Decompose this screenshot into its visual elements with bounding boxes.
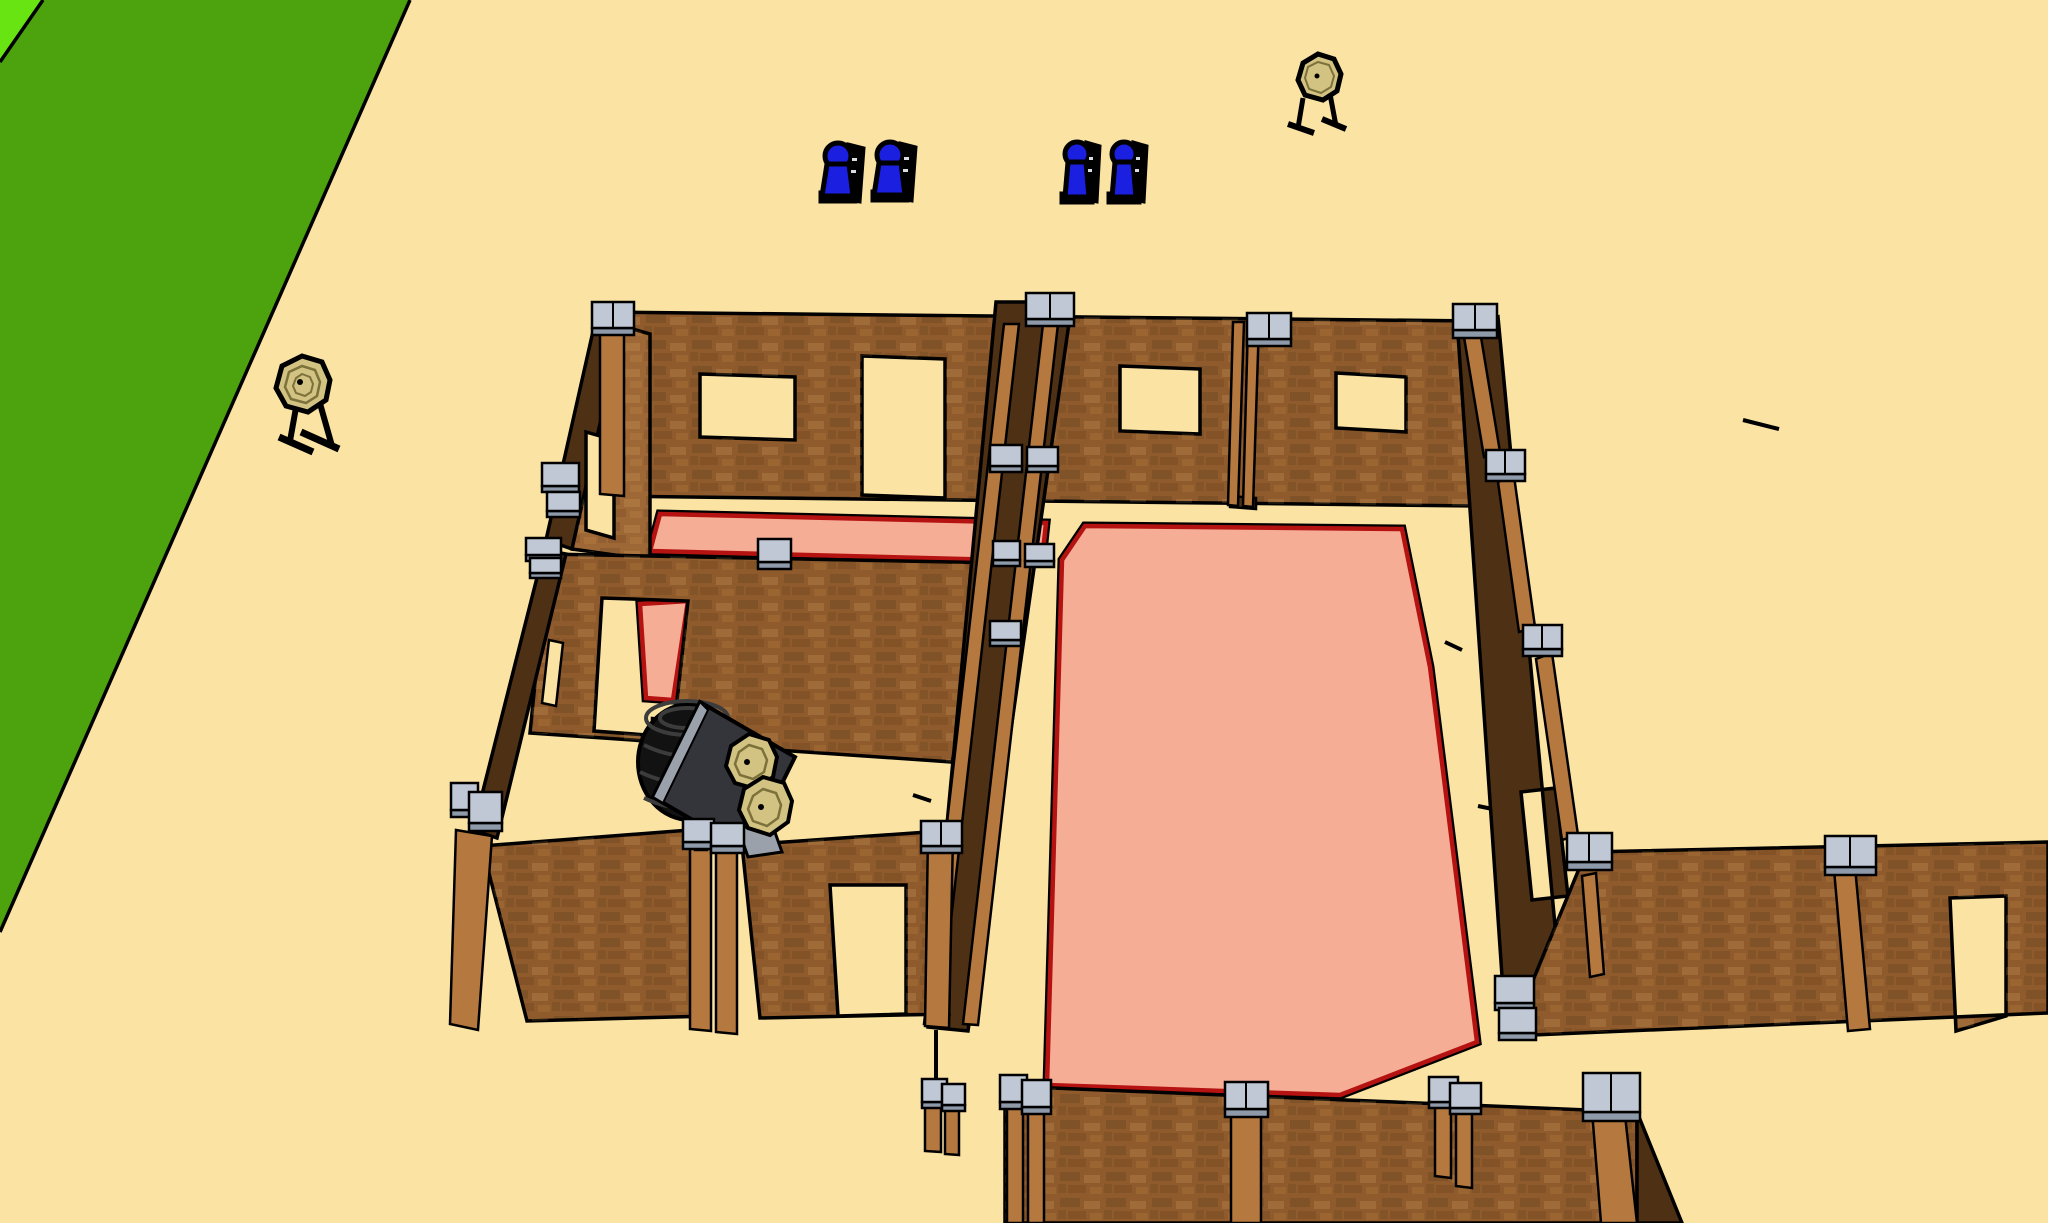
popper-body <box>874 163 905 195</box>
hinge-dot <box>904 157 909 160</box>
post-cap[interactable] <box>683 819 714 842</box>
divider-post-stub[interactable] <box>945 1108 959 1155</box>
wall-post[interactable] <box>600 316 624 496</box>
target-center-dot <box>297 379 303 385</box>
popper-body <box>822 164 853 196</box>
post-cap[interactable] <box>547 492 580 511</box>
scene-root <box>0 0 2048 1223</box>
paper-target[interactable] <box>276 356 330 412</box>
door-frame-post[interactable] <box>690 832 711 1031</box>
scene-svg[interactable] <box>0 0 2048 1223</box>
stage-3d-viewport[interactable] <box>0 0 2048 1223</box>
post-cap[interactable] <box>1450 1083 1481 1108</box>
hinge-dot <box>1088 169 1092 172</box>
door-frame-post[interactable] <box>716 834 737 1034</box>
fault-floor-main[interactable] <box>1047 526 1477 1095</box>
post-cap[interactable] <box>758 539 791 562</box>
post-cap[interactable] <box>1495 976 1534 1003</box>
target-center-dot <box>1315 74 1320 79</box>
post-cap-side <box>1583 1112 1640 1121</box>
popper[interactable] <box>872 142 916 201</box>
popper[interactable] <box>820 143 864 202</box>
hinge-dot <box>903 169 908 172</box>
target-center-dot <box>758 804 764 810</box>
divider-post-stub[interactable] <box>925 1104 941 1152</box>
target-center-dot <box>744 759 750 765</box>
post-cap[interactable] <box>1027 447 1058 466</box>
hinge-dot <box>852 158 857 161</box>
post-cap[interactable] <box>990 621 1021 640</box>
post-cap[interactable] <box>990 445 1022 466</box>
hinge-dot <box>1089 157 1093 160</box>
post-cap[interactable] <box>711 823 744 846</box>
popper-body <box>1065 162 1089 197</box>
post-cap[interactable] <box>542 463 579 486</box>
post-cap[interactable] <box>526 538 561 555</box>
popper-body <box>1112 162 1136 197</box>
popper[interactable] <box>1108 142 1147 203</box>
post-cap[interactable] <box>530 558 561 573</box>
popper[interactable] <box>1061 142 1100 203</box>
post-cap[interactable] <box>1499 1008 1536 1033</box>
post-cap[interactable] <box>469 792 502 823</box>
hinge-dot <box>1135 169 1139 172</box>
post-cap[interactable] <box>1025 544 1054 561</box>
post-cap[interactable] <box>1022 1080 1051 1107</box>
post-cap[interactable] <box>942 1084 965 1105</box>
post-cap[interactable] <box>993 541 1020 560</box>
hinge-dot <box>851 170 856 173</box>
hinge-dot <box>1136 157 1140 160</box>
corner-post[interactable] <box>925 834 953 1028</box>
